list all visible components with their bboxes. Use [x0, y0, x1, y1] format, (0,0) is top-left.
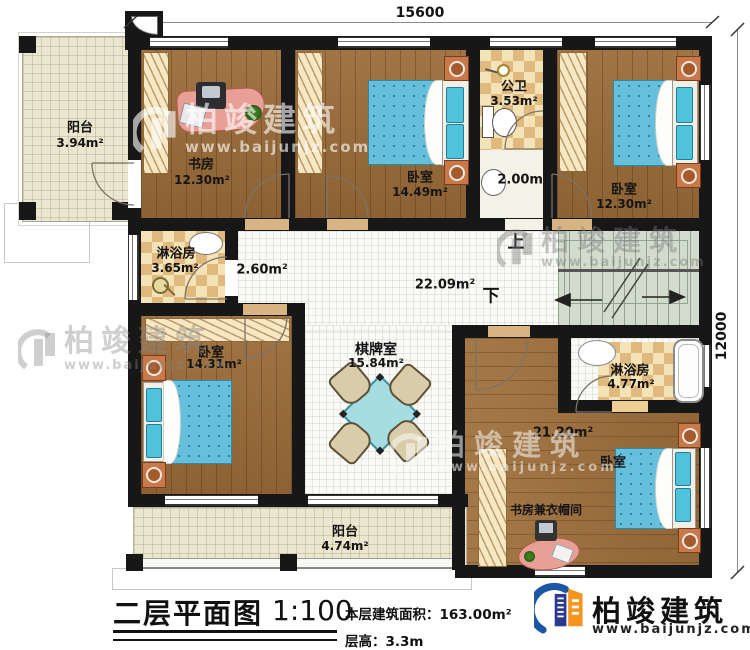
roof-outline	[112, 568, 472, 590]
door-threshold	[243, 304, 287, 315]
nightstand-lamp	[146, 467, 162, 483]
dimension-label-right: 12000	[715, 312, 729, 361]
wall	[292, 303, 305, 507]
room-label-balcony-bottom: 阳台	[332, 526, 358, 539]
window	[595, 37, 676, 48]
stairs-divider	[558, 269, 699, 272]
bed-cushion	[446, 87, 464, 123]
door-threshold	[488, 326, 530, 337]
bed-cushion	[146, 424, 162, 458]
nightstand-lamp	[681, 61, 697, 77]
dimension-line-right	[737, 30, 738, 573]
room-area-bedroom-left: 14.31m²	[186, 358, 242, 370]
room-area-passage: 2.60m²	[236, 264, 287, 277]
wardrobe	[297, 52, 323, 174]
room-label-study-cloak: 书房兼衣帽间	[510, 504, 582, 516]
room-label-bedroom-bottom-right: 卧室	[600, 457, 626, 470]
wardrobe	[145, 318, 290, 342]
plan-title: 二层平面图	[113, 592, 263, 632]
room-label-chess: 棋牌室	[355, 343, 397, 357]
room-area-bedroom-top-right: 12.30m²	[596, 198, 652, 210]
towel-ring	[497, 64, 510, 77]
sliding-door	[308, 495, 438, 506]
window	[128, 235, 139, 300]
stairs-down-label: 下	[483, 289, 500, 306]
brand-url: www.baijunjz.com	[592, 622, 750, 637]
balcony-column	[19, 202, 36, 220]
room-area-shower-right: 4.77m²	[607, 378, 654, 390]
balcony-column	[126, 554, 143, 571]
door-opening	[128, 160, 141, 208]
room-area-bedroom-top-mid: 14.49m²	[392, 186, 448, 198]
nightstand	[676, 163, 701, 188]
nightstand-lamp	[449, 61, 465, 77]
wardrobe	[143, 52, 169, 174]
nightstand	[676, 56, 701, 81]
nightstand	[444, 56, 469, 81]
dimension-line-top	[130, 22, 712, 23]
room-area-wash: 2.00m²	[497, 174, 548, 187]
room-area-hall: 22.09m²	[415, 279, 475, 292]
floor-height-text: 层高：3.3m	[345, 630, 423, 650]
title-underline	[113, 639, 337, 641]
balcony-column	[19, 36, 36, 53]
stairs-up-label: 上	[508, 235, 525, 252]
wall	[543, 48, 557, 218]
room-label-shower-right: 淋浴房	[610, 365, 649, 378]
wardrobe	[478, 448, 507, 567]
nightstand-lamp	[681, 168, 697, 184]
wall	[225, 228, 238, 260]
computer-screen	[539, 523, 553, 533]
window	[490, 37, 562, 48]
door-threshold	[612, 401, 648, 412]
nightstand	[678, 528, 701, 553]
room-area-public-bath: 3.53m²	[490, 95, 537, 107]
stairs-handrail	[564, 240, 688, 304]
window	[165, 495, 258, 506]
room-area-bedroom-bottom-right: 21.20m²	[533, 427, 593, 440]
room-area-balcony-bottom: 4.74m²	[321, 540, 368, 552]
balcony-bottom-railing	[133, 558, 465, 569]
wall	[128, 218, 712, 231]
wardrobe	[559, 52, 587, 172]
nightstand-lamp	[449, 165, 465, 181]
nightstand-lamp	[146, 360, 162, 376]
room-label-study: 书房	[188, 159, 214, 172]
dimension-label-top: 15600	[396, 6, 445, 20]
door-threshold	[245, 219, 289, 230]
nightstand-lamp	[682, 533, 698, 549]
title-underline	[113, 630, 337, 633]
room-label-balcony-top: 阳台	[67, 122, 93, 135]
plan-scale: 1:100	[272, 594, 353, 627]
bathtub-inner	[678, 344, 699, 398]
bathtub	[673, 339, 704, 403]
balcony-column	[280, 554, 297, 571]
bed-cushion	[675, 488, 691, 522]
door-threshold	[327, 219, 368, 230]
room-label-shower-left: 淋浴房	[156, 248, 195, 261]
nightstand	[142, 355, 166, 381]
window	[150, 37, 228, 48]
plant	[524, 551, 535, 562]
nightstand	[444, 160, 469, 185]
bed-cushion	[146, 388, 162, 422]
wall	[452, 325, 465, 570]
computer-screen	[202, 86, 220, 98]
brand-logo	[534, 581, 588, 641]
nightstand	[678, 423, 701, 448]
window	[338, 37, 430, 48]
nightstand-lamp	[682, 428, 698, 444]
window	[700, 85, 711, 160]
balcony-column	[112, 202, 129, 220]
room-label-bedroom-top-mid: 卧室	[407, 172, 433, 185]
bed-cushion	[675, 452, 691, 486]
window	[700, 448, 711, 528]
room-area-balcony-top: 3.94m²	[56, 137, 103, 149]
bed-cushion	[676, 87, 693, 123]
floor-area-text: 本层建筑面积：163.00m²	[345, 603, 512, 623]
sink	[578, 340, 616, 366]
watermark-logo-icon	[18, 326, 58, 378]
bed-cushion	[446, 124, 464, 159]
floor-plan: 15600 12000	[0, 0, 750, 650]
room-area-study: 12.30m²	[174, 174, 230, 186]
toilet-bowl	[492, 108, 517, 137]
room-area-chess: 15.84m²	[348, 357, 404, 369]
wall	[281, 48, 295, 218]
door-threshold	[552, 219, 592, 230]
door-threshold	[505, 219, 543, 230]
nightstand	[142, 462, 166, 488]
bed-cushion	[676, 125, 693, 160]
room-label-public-bath: 公卫	[501, 81, 527, 94]
plant	[245, 105, 262, 121]
room-label-bedroom-top-right: 卧室	[611, 184, 637, 197]
room-area-shower-left: 3.65m²	[151, 262, 198, 274]
